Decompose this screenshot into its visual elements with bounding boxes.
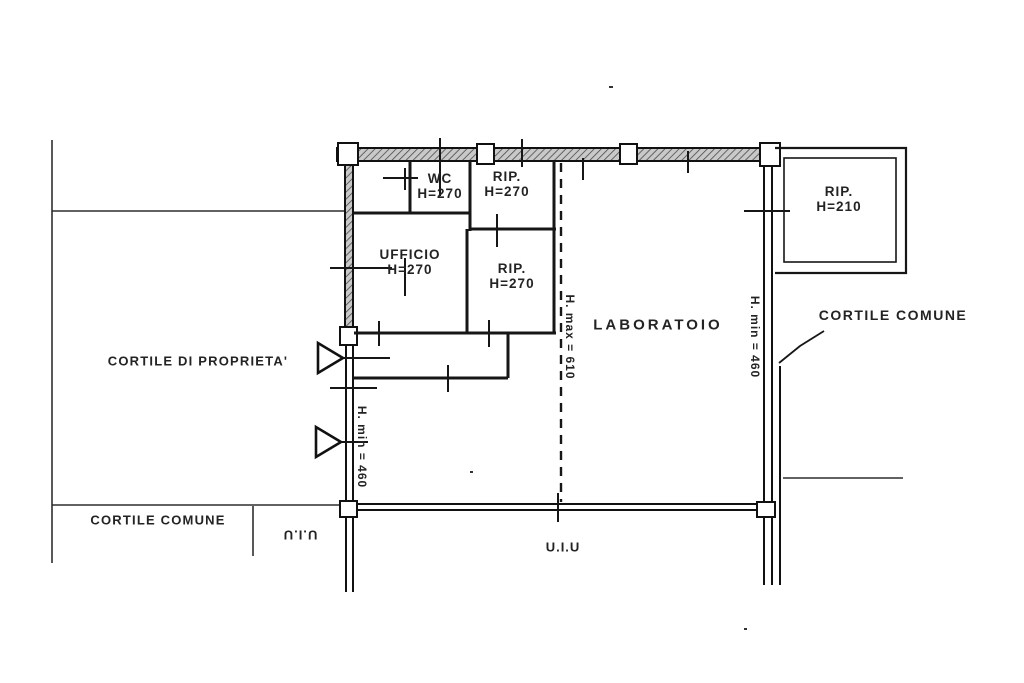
area-label-cortile-comune-right: CORTILE COMUNE <box>819 308 968 324</box>
entrance-triangle-icon <box>318 343 343 373</box>
room-name: RIP. <box>493 169 522 184</box>
entrance-arrows <box>316 343 343 457</box>
top-exterior-wall <box>337 148 778 161</box>
room-name: RIP. <box>498 261 527 276</box>
floorplan-drawing <box>0 0 1024 683</box>
scan-specks <box>470 86 747 630</box>
entrance-triangle-icon <box>316 427 341 457</box>
room-label-rip-right: RIP. H=210 <box>816 184 861 214</box>
room-label-laboratorio: LABORATOIO <box>593 318 722 335</box>
room-height: H=270 <box>489 276 534 291</box>
room-name: UFFICIO <box>380 247 441 262</box>
dimension-label-hmin-right: H. min = 460 <box>749 296 761 378</box>
room-label-rip-top: RIP. H=270 <box>484 169 529 199</box>
room-height: H=270 <box>417 186 462 201</box>
area-label-cortile-proprieta: CORTILE DI PROPRIETA' <box>108 355 288 370</box>
room-label-wc: WC H=270 <box>417 171 462 201</box>
bottom-exterior-wall <box>345 504 775 510</box>
room-height: H=270 <box>380 262 441 277</box>
room-name: RIP. <box>825 184 854 199</box>
property-boundary-lines <box>52 140 345 563</box>
floorplan-page: WC H=270 RIP. H=270 UFFICIO H=270 RIP. H… <box>0 0 1024 683</box>
area-label-uiu-center: U.I.U <box>546 541 581 556</box>
dimension-label-hmax-center: H. max = 610 <box>564 294 576 379</box>
right-exterior-wall <box>764 148 780 585</box>
left-exterior-wall <box>345 150 353 592</box>
dimension-label-hmin-left: H. min = 460 <box>356 406 368 488</box>
room-label-ufficio: UFFICIO H=270 <box>380 247 441 277</box>
room-height: H=210 <box>816 199 861 214</box>
room-name: WC <box>428 171 453 186</box>
room-label-rip-mid: RIP. H=270 <box>489 261 534 291</box>
room-height: H=270 <box>484 184 529 199</box>
area-label-uiu-left: U.I.U <box>283 527 318 542</box>
cortile-leader-line <box>779 331 824 363</box>
area-label-cortile-comune-bottom: CORTILE COMUNE <box>90 514 225 529</box>
